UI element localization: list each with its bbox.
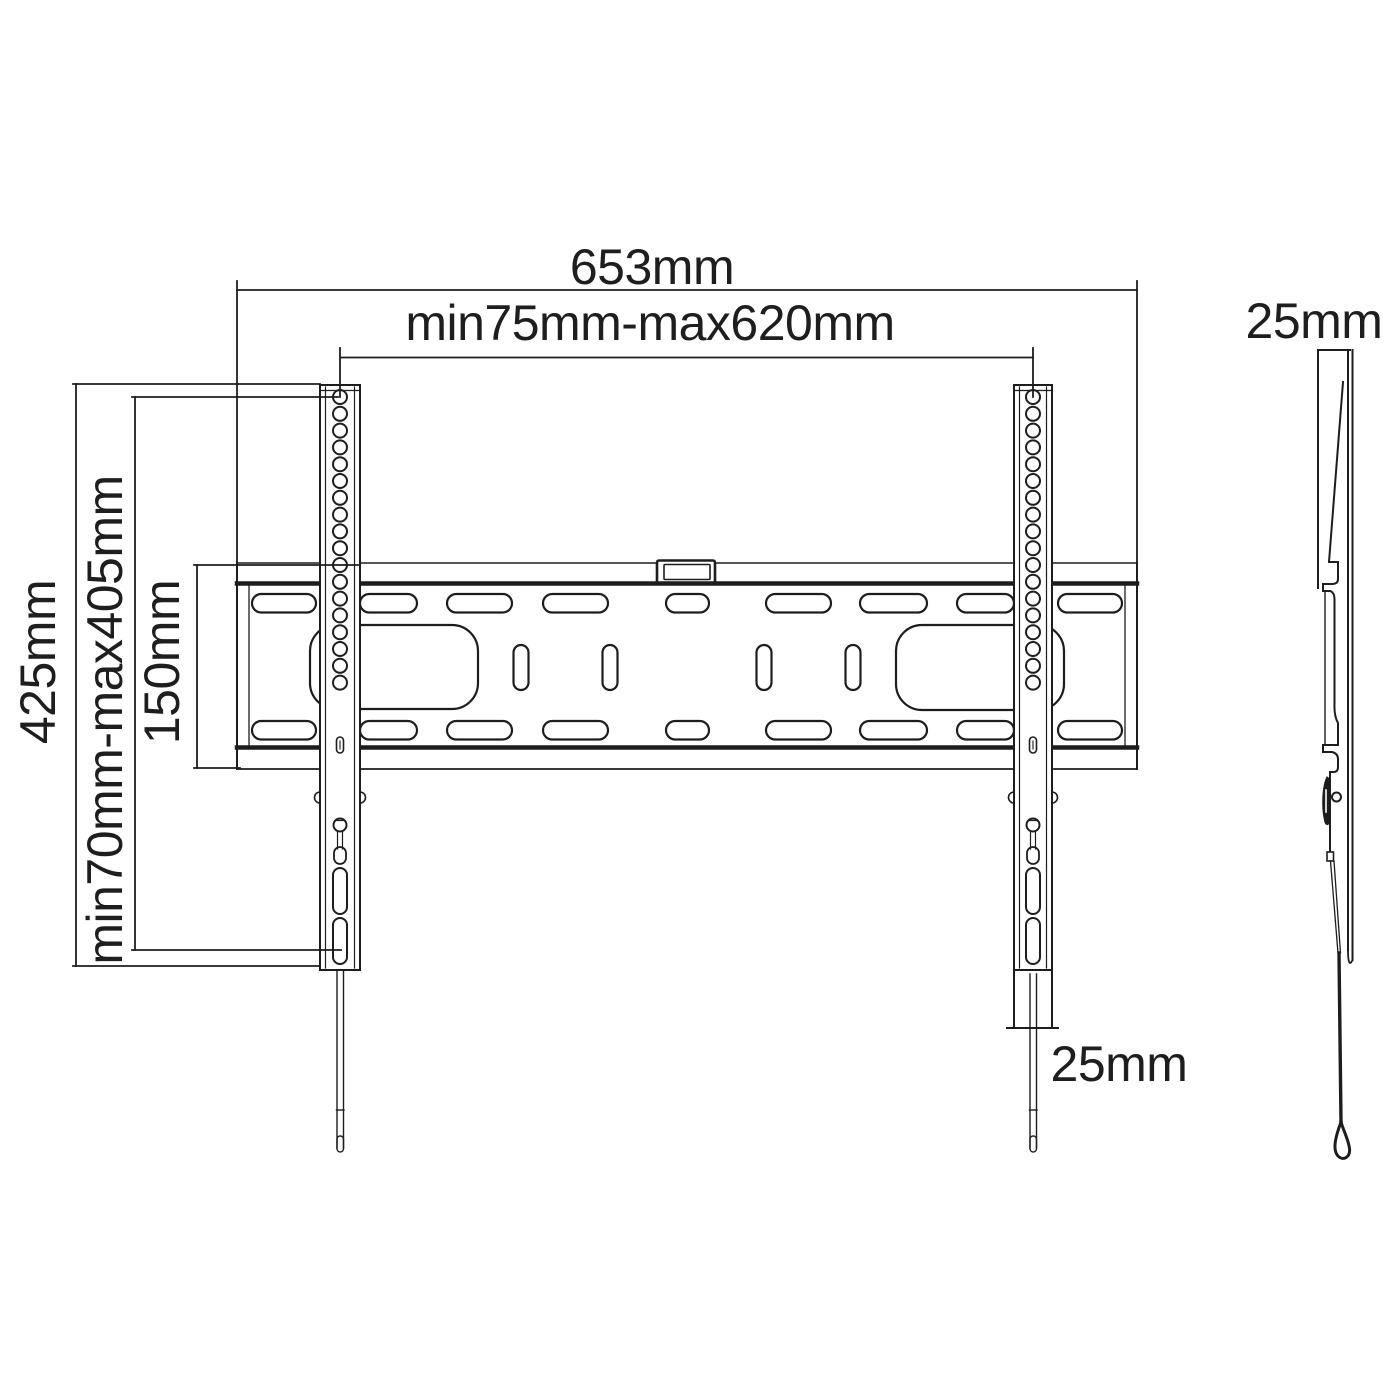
dimension-drawing: 653mm min75mm-max620mm 25mm 425mm min70m… xyxy=(0,0,1400,1400)
plate-bottom-slots xyxy=(252,721,1122,740)
dim-mount-height-range-label: min70mm-max405mm xyxy=(79,420,131,1020)
plate-cutouts xyxy=(310,625,1064,710)
plate-middle-slots xyxy=(514,645,861,690)
right-rail-sleeve xyxy=(1007,970,1058,1028)
plate-top-slots xyxy=(252,594,1122,613)
left-rail-pull-cord xyxy=(337,970,345,1152)
dim-plate-height-label: 150mm xyxy=(136,462,188,862)
dim-mount-width-range-label: min75mm-max620mm xyxy=(350,297,950,349)
dim-mount-width-lines xyxy=(340,348,1033,397)
side-view xyxy=(1318,350,1353,1158)
side-latch-and-cord xyxy=(1323,777,1350,1158)
level-tab xyxy=(657,561,715,584)
dimension-lines xyxy=(73,281,1137,966)
dim-overall-width-label: 653mm xyxy=(452,241,852,293)
left-vesa-rail xyxy=(315,385,366,1152)
dim-side-depth-label: 25mm xyxy=(1214,295,1400,347)
wall-plate xyxy=(237,561,1137,770)
dim-overall-height-label: 425mm xyxy=(12,462,64,862)
dim-rail-bottom-offset-label: 25mm xyxy=(1019,1038,1219,1090)
bracket-line-drawing xyxy=(0,0,1400,1400)
